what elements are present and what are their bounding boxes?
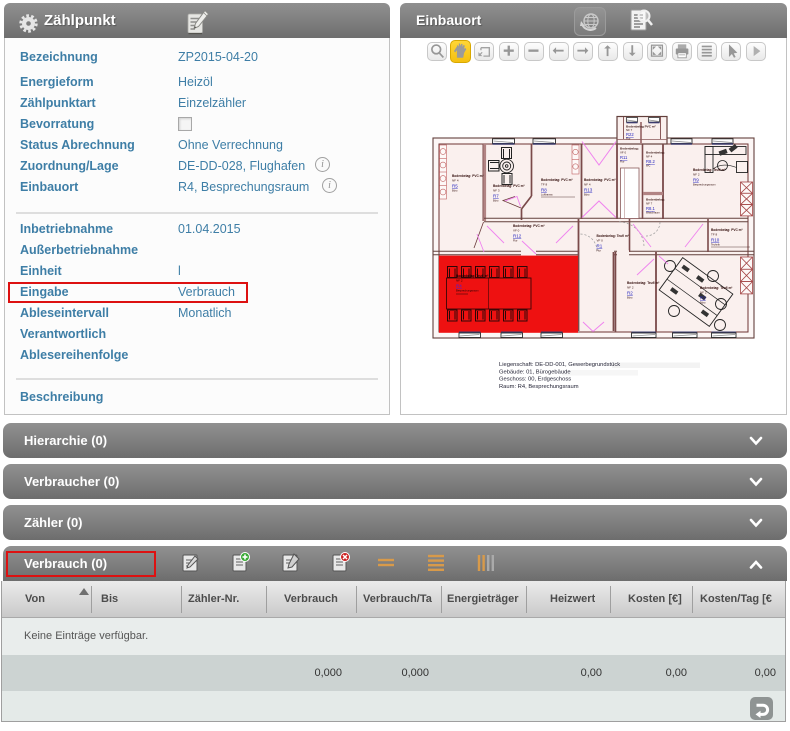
svg-text:VF 0: VF 0 — [513, 229, 520, 233]
svg-text:Büro: Büro — [452, 189, 458, 193]
svg-text:Liegenschaft: DE-DD-001, Gewer: Liegenschaft: DE-DD-001, Gewerbegrundstü… — [499, 362, 620, 368]
svg-text:Bodenbelag: Teufl m²: Bodenbelag: Teufl m² — [597, 234, 629, 238]
svg-text:R4: R4 — [456, 284, 462, 289]
svg-text:Technik: Technik — [711, 243, 720, 247]
svg-text:Gebäude: 01, Bürogebäude: Gebäude: 01, Bürogebäude — [499, 369, 571, 375]
svg-text:R12: R12 — [513, 234, 522, 239]
svg-text:NF 4: NF 4 — [646, 155, 653, 159]
svg-text:Bodenbelag: Teufl m²: Bodenbelag: Teufl m² — [456, 274, 488, 278]
svg-text:Bodenbelag: Teufl m²: Bodenbelag: Teufl m² — [700, 286, 732, 290]
svg-text:WC: WC — [646, 164, 650, 168]
svg-text:R11: R11 — [620, 155, 628, 160]
svg-text:TF 8: TF 8 — [711, 233, 717, 237]
svg-text:Bodenbelag: PVC m²: Bodenbelag: PVC m² — [452, 174, 484, 178]
svg-text:R2: R2 — [627, 291, 633, 296]
svg-text:R13: R13 — [584, 188, 593, 193]
svg-text:Flur: Flur — [626, 137, 631, 141]
svg-text:Flur: Flur — [597, 249, 602, 253]
svg-text:Geschoss: 00, Erdgeschoss: Geschoss: 00, Erdgeschoss — [499, 377, 571, 383]
svg-text:R7: R7 — [493, 194, 499, 199]
svg-text:Bodenbelag: Teufl m²: Bodenbelag: Teufl m² — [627, 281, 659, 285]
svg-text:Bodenbelag: PVC m²: Bodenbelag: PVC m² — [541, 178, 573, 182]
svg-text:R8.1: R8.1 — [646, 206, 656, 211]
svg-text:Besprechungsraum: Besprechungsraum — [456, 289, 479, 293]
svg-text:Waschraum: Waschraum — [646, 211, 660, 215]
svg-text:NF 2: NF 2 — [700, 291, 707, 295]
svg-text:Bodenbelag: PVC m²: Bodenbelag: PVC m² — [493, 184, 525, 188]
svg-text:VF 0: VF 0 — [597, 239, 604, 243]
svg-text:R3: R3 — [700, 296, 706, 301]
svg-text:R5: R5 — [452, 184, 458, 189]
svg-text:Bodenbelag: PVC m²: Bodenbelag: PVC m² — [584, 178, 616, 182]
svg-text:Flur: Flur — [620, 160, 625, 164]
svg-text:NF 2: NF 2 — [627, 286, 634, 290]
svg-text:R9: R9 — [693, 178, 699, 183]
svg-text:TF 8: TF 8 — [541, 183, 547, 187]
svg-text:R8.2: R8.2 — [646, 159, 656, 164]
svg-text:Büro: Büro — [584, 193, 590, 197]
svg-text:Büro: Büro — [627, 296, 633, 300]
svg-text:NF 3: NF 3 — [493, 189, 500, 193]
svg-text:Lufthansa: Lufthansa — [541, 193, 553, 197]
svg-text:Besprechungsraum: Besprechungsraum — [693, 183, 716, 187]
svg-text:NF 4: NF 4 — [452, 179, 459, 183]
svg-text:VF 0: VF 0 — [620, 151, 626, 155]
svg-text:NF 2: NF 2 — [456, 279, 463, 283]
svg-text:NF 4: NF 4 — [584, 183, 591, 187]
svg-text:Büro: Büro — [493, 199, 499, 203]
svg-text:R22: R22 — [626, 132, 634, 137]
svg-text:Flur: Flur — [513, 239, 518, 243]
svg-text:R1: R1 — [597, 244, 603, 249]
svg-text:Büro: Büro — [700, 301, 706, 305]
svg-text:R8: R8 — [541, 188, 547, 193]
svg-text:NF 7: NF 7 — [646, 202, 653, 206]
svg-text:Raum: R4, Besprechungsraum: Raum: R4, Besprechungsraum — [499, 384, 579, 390]
svg-text:Bodenbelag: Teufl m²: Bodenbelag: Teufl m² — [693, 168, 725, 172]
svg-text:Bodenbelag: PVC m²: Bodenbelag: PVC m² — [513, 224, 545, 228]
svg-text:R10: R10 — [711, 238, 720, 243]
svg-text:NF 2: NF 2 — [693, 173, 700, 177]
svg-text:Bodenbelag: PVC m²: Bodenbelag: PVC m² — [711, 228, 743, 232]
